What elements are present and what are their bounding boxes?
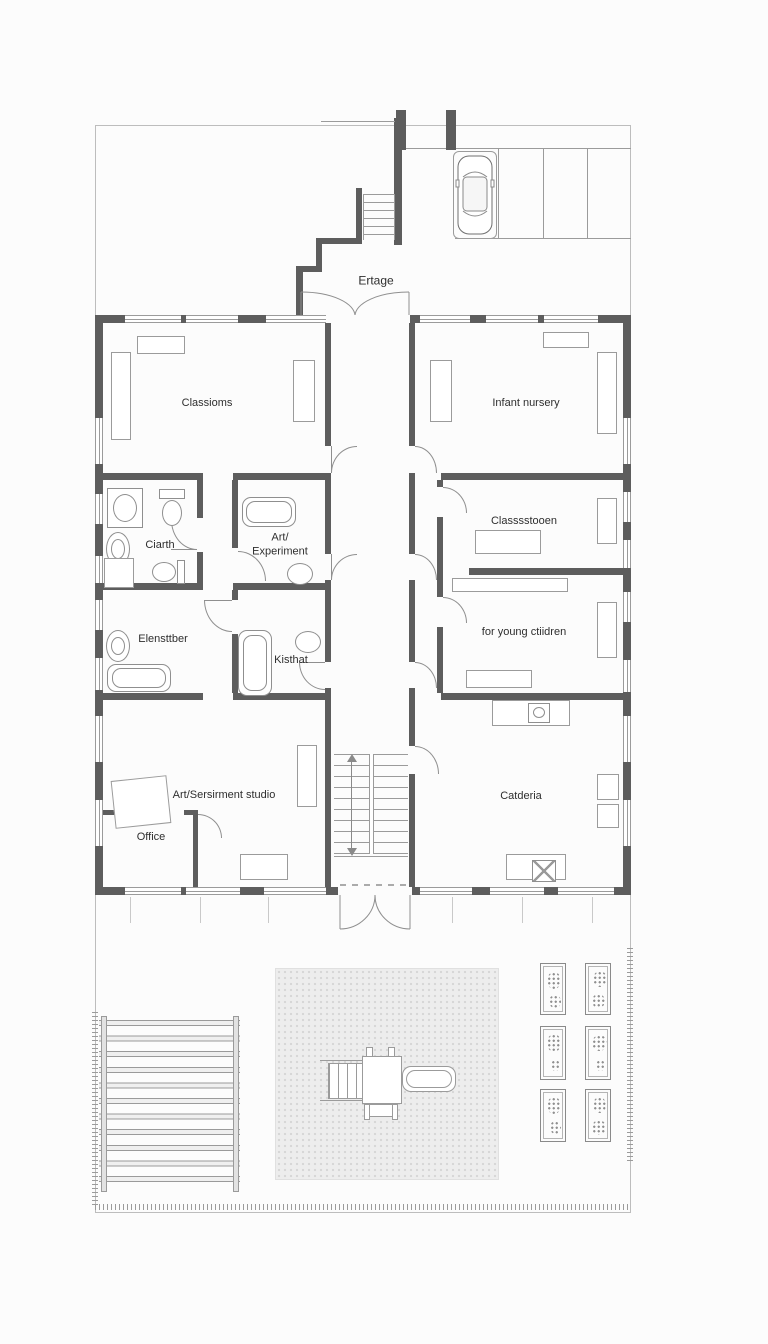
window — [490, 887, 544, 895]
label-line: Art/ — [252, 531, 308, 545]
floor-plan: Ertage Classioms Infant nursery Ciarth A… — [0, 0, 768, 1344]
ladder-rail — [320, 1060, 366, 1061]
door-opening — [443, 568, 469, 575]
pergola-bars — [99, 1020, 240, 1190]
shower-basin — [113, 494, 137, 522]
door-leaf — [204, 600, 232, 601]
bathtub-inner — [243, 635, 267, 691]
flower-bed — [585, 1089, 611, 1142]
counter — [104, 558, 134, 588]
stair-edge — [321, 121, 395, 122]
door-opening — [203, 583, 233, 590]
slide-inner — [406, 1070, 452, 1088]
paving-line — [522, 897, 523, 923]
toilet-bowl — [162, 500, 182, 526]
flower-bed — [540, 1089, 566, 1142]
sink-basin — [533, 707, 545, 718]
sink-icon — [295, 631, 321, 653]
furniture — [137, 336, 185, 354]
stall-divider — [587, 148, 588, 239]
stair-arrow-line — [351, 762, 352, 850]
equipment-box — [532, 860, 556, 882]
threshold-dashed-line — [340, 884, 410, 886]
furniture — [111, 352, 131, 440]
flower-bed — [540, 1026, 566, 1080]
window — [420, 315, 470, 323]
window — [623, 800, 631, 846]
label-art-studio: Art/Sersirment studio — [173, 789, 276, 803]
furniture — [240, 854, 288, 880]
car-icon — [456, 153, 494, 237]
window — [623, 492, 631, 522]
boundary-hatch-left — [92, 1012, 98, 1208]
window — [264, 887, 326, 895]
stair-landing-line — [334, 856, 408, 857]
window — [186, 887, 240, 895]
window — [95, 556, 103, 586]
window — [558, 887, 614, 895]
post — [366, 1047, 373, 1057]
stair-wall — [394, 118, 402, 245]
furniture — [543, 332, 589, 348]
furniture — [597, 498, 617, 544]
boundary-hatch-right — [627, 948, 633, 1162]
furniture — [452, 578, 568, 592]
boundary-hatch-bottom — [95, 1204, 631, 1210]
furniture — [430, 360, 452, 422]
paving-line — [592, 897, 593, 923]
stair-wall — [320, 238, 362, 244]
stair-treads — [363, 194, 395, 240]
flower-bed — [585, 1026, 611, 1080]
furniture — [597, 602, 617, 658]
door-opening — [415, 473, 441, 480]
door-leaf — [331, 446, 332, 473]
label-classrooms: Classioms — [182, 397, 233, 411]
window — [95, 800, 103, 846]
toilet-icon — [152, 562, 176, 582]
furniture — [293, 360, 315, 422]
flower-bed — [585, 963, 611, 1015]
furniture — [597, 352, 617, 434]
label-kitchen: Kisthat — [274, 654, 308, 668]
door-opening — [232, 600, 238, 634]
stall-divider — [543, 148, 544, 239]
pergola-post — [233, 1016, 239, 1192]
window — [623, 592, 631, 622]
post — [388, 1047, 395, 1057]
stair-divider — [369, 754, 374, 854]
flower-bed — [540, 963, 566, 1015]
porch-wall — [448, 124, 455, 150]
stair-arrow-head — [347, 848, 357, 856]
paving-line — [268, 897, 269, 923]
south-double-door — [336, 893, 414, 935]
door-opening — [203, 473, 233, 480]
label-line: Experiment — [252, 545, 308, 559]
sink-icon — [287, 563, 313, 585]
door-leaf — [171, 549, 197, 550]
ladder-rail — [320, 1100, 366, 1101]
post — [392, 1104, 398, 1120]
furniture — [466, 670, 532, 688]
window — [125, 887, 181, 895]
window — [95, 716, 103, 762]
paving-line — [200, 897, 201, 923]
furniture — [297, 745, 317, 807]
window — [623, 660, 631, 692]
furniture — [111, 775, 172, 829]
stair-arrow-head — [347, 754, 357, 762]
paving-line — [452, 897, 453, 923]
label-classroom-east: Classsstooen — [491, 515, 557, 529]
entrance-double-door — [298, 290, 412, 318]
window — [420, 887, 472, 895]
window — [266, 315, 326, 323]
label-office: Office — [137, 831, 166, 845]
partition — [437, 575, 443, 693]
stair-wall — [356, 188, 362, 244]
partition — [409, 473, 631, 480]
label-entrance: Ertage — [358, 274, 393, 289]
door-opening — [325, 662, 331, 688]
window — [95, 494, 103, 524]
label-young-children: for young ctiidren — [482, 626, 566, 640]
sink-basin — [111, 539, 125, 559]
corridor-wall-east — [409, 323, 415, 887]
furniture — [597, 804, 619, 828]
door-opening — [197, 518, 203, 552]
toilet-icon — [159, 489, 185, 499]
parking-line — [400, 148, 631, 149]
window — [486, 315, 538, 323]
window — [623, 418, 631, 464]
stall-divider — [498, 148, 499, 239]
furniture — [475, 530, 541, 554]
window — [95, 600, 103, 630]
window — [125, 315, 181, 323]
platform — [362, 1056, 402, 1104]
toilet-tank — [177, 560, 185, 584]
window — [186, 315, 238, 323]
bathtub-inner — [112, 668, 166, 688]
label-changing-room: Elensttber — [138, 633, 188, 647]
label-bath: Ciarth — [145, 539, 174, 553]
door-leaf — [331, 554, 332, 580]
window — [95, 418, 103, 464]
window — [544, 315, 598, 323]
window — [95, 658, 103, 690]
ladder-icon — [328, 1063, 364, 1099]
label-infant-nursery: Infant nursery — [492, 397, 559, 411]
label-art-experiment: Art/ Experiment — [252, 531, 308, 559]
pergola-post — [101, 1016, 107, 1192]
partition — [409, 693, 631, 700]
stairwell-wall — [325, 748, 331, 887]
label-cafeteria: Catderia — [500, 790, 542, 804]
bathtub-inner — [246, 501, 292, 523]
sink-basin — [111, 637, 125, 655]
window — [623, 540, 631, 570]
window — [623, 716, 631, 762]
paving-line — [130, 897, 131, 923]
door-opening — [203, 693, 233, 700]
door-opening — [415, 693, 441, 700]
furniture — [597, 774, 619, 800]
post — [364, 1104, 370, 1120]
